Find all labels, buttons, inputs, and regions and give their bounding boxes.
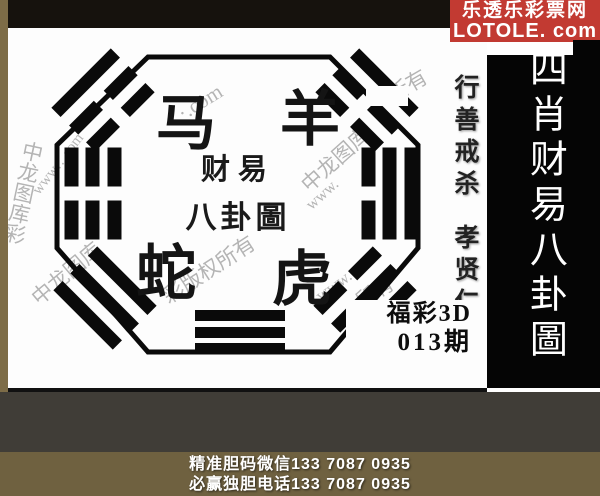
panel-top-notch xyxy=(573,40,600,56)
trigram-line-solid xyxy=(405,148,419,240)
trigram-line-broken xyxy=(362,148,376,240)
zodiac-goat: 羊 xyxy=(280,90,340,150)
zodiac-tiger: 虎 xyxy=(272,250,332,310)
trigram-line-solid xyxy=(383,148,397,240)
whiteout-patch xyxy=(366,86,408,106)
issue-box: 福彩3D 013期 xyxy=(346,300,482,364)
zodiac-horse: 马 xyxy=(156,94,216,154)
motto-column-1: 行善戒杀 xyxy=(446,74,482,202)
bagua-content-area: 中龙图库彩www…com·.com中龙图库www.所有彩版权所有中龙图库www.… xyxy=(8,28,487,392)
center-seal-line1: 财易 xyxy=(158,146,318,188)
trigram-line-solid xyxy=(195,327,285,338)
footer-contact: 精准胆码微信133 7087 0935 必赢独胆电话133 7087 0935 xyxy=(0,452,600,496)
trigram-line-broken xyxy=(108,148,122,240)
footer-line2: 必赢独胆电话133 7087 0935 xyxy=(0,475,600,495)
trigram-right xyxy=(362,148,419,240)
trigram-left xyxy=(65,148,122,240)
trigram-line-broken xyxy=(86,148,100,240)
center-seal: 财易 八卦圖 xyxy=(158,146,318,237)
trigram-line-broken xyxy=(65,148,79,240)
site-name: 乐透乐彩票网 xyxy=(450,0,600,21)
title-panel: 四肖财易八卦圖 xyxy=(487,55,600,388)
bottom-dark-band xyxy=(0,392,600,452)
trigram-bottom xyxy=(195,310,285,354)
trigram-line-solid xyxy=(195,343,285,354)
game-name: 福彩3D xyxy=(346,300,472,328)
top-frame-band xyxy=(0,0,452,28)
lottery-bagua-image: 中龙图库彩www…com·.com中龙图库www.所有彩版权所有中龙图库www.… xyxy=(0,0,600,496)
footer-line1: 精准胆码微信133 7087 0935 xyxy=(0,455,600,475)
center-seal-line2: 八卦圖 xyxy=(158,192,318,237)
panel-title: 四肖财易八卦圖 xyxy=(523,55,565,388)
issue-period: 013期 xyxy=(346,328,472,358)
zodiac-snake: 蛇 xyxy=(136,244,196,304)
